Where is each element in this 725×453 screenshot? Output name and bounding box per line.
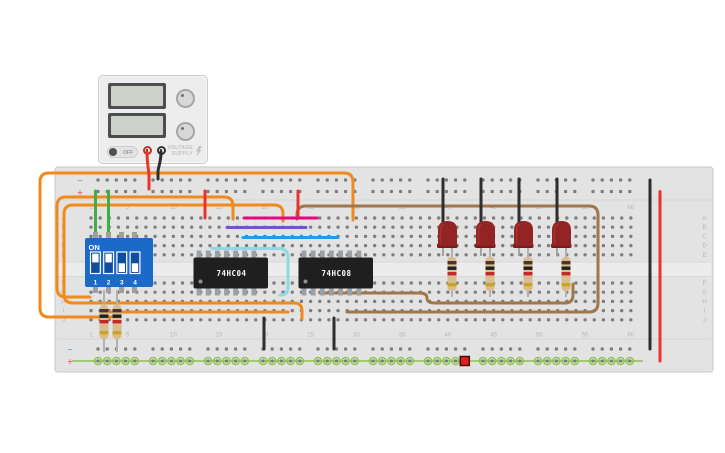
resistor-band xyxy=(524,283,533,286)
resistor-band xyxy=(486,272,495,275)
resistor-band xyxy=(524,272,533,275)
ic-pin xyxy=(233,251,238,259)
dip-on-label: ON xyxy=(89,243,100,252)
ic-pin xyxy=(347,251,352,259)
dip-pin xyxy=(119,232,124,239)
dip-pin xyxy=(93,286,98,293)
resistor-band xyxy=(448,272,457,275)
dip-pin xyxy=(132,232,137,239)
resistor-band xyxy=(486,261,495,264)
dip-switch-number: 2 xyxy=(107,280,111,287)
resistor-band xyxy=(486,267,495,270)
resistor-band xyxy=(448,261,457,264)
dip-switch-number: 1 xyxy=(94,280,98,287)
resistor-band xyxy=(100,309,109,312)
ic-pin xyxy=(242,288,247,296)
ic-pin1-dot-icon xyxy=(199,280,203,284)
ic-pin xyxy=(302,288,307,296)
resistor-band xyxy=(562,267,571,270)
resistor-band xyxy=(562,261,571,264)
resistor-left-1[interactable] xyxy=(100,290,109,352)
resistor-band xyxy=(113,320,122,323)
circuit-canvas: 1155101015152020252530303535404045455050… xyxy=(0,0,725,453)
ic-pin xyxy=(320,288,325,296)
ic-pin xyxy=(338,251,343,259)
resistor-band xyxy=(100,315,109,318)
resistor-led-4[interactable] xyxy=(562,249,571,297)
ic-pin xyxy=(357,288,362,296)
resistor-band xyxy=(100,331,109,334)
led-red-1[interactable] xyxy=(437,221,458,256)
ic-pin xyxy=(215,288,220,296)
dip-switch-slider-2[interactable] xyxy=(105,254,111,263)
dip-switch-slider-4[interactable] xyxy=(132,263,138,272)
ic-pin xyxy=(242,251,247,259)
resistor-band xyxy=(448,283,457,286)
dip-pin xyxy=(119,286,124,293)
ic-pin xyxy=(224,288,229,296)
ic-pin xyxy=(252,251,257,259)
ic-pin xyxy=(357,251,362,259)
components-layer[interactable]: ON123474HC0474HC08 xyxy=(0,0,725,453)
dip-pin xyxy=(132,286,137,293)
dip-switch-slider-3[interactable] xyxy=(119,263,125,272)
ic-pin xyxy=(206,251,211,259)
ic-pin xyxy=(311,251,316,259)
resistor-led-1[interactable] xyxy=(448,249,457,297)
ic-74hc04[interactable]: 74HC04 xyxy=(194,251,269,296)
resistor-band xyxy=(562,272,571,275)
ic-74hc08[interactable]: 74HC08 xyxy=(299,251,374,296)
resistor-band xyxy=(113,315,122,318)
dip-switch-number: 3 xyxy=(120,280,124,287)
dip-pin xyxy=(106,286,111,293)
dip-pin xyxy=(106,232,111,239)
ic-pin xyxy=(252,288,257,296)
ic-pin xyxy=(215,251,220,259)
ic-pin1-dot-icon xyxy=(304,280,308,284)
ic-pin xyxy=(329,251,334,259)
ic-pin xyxy=(302,251,307,259)
led-red-3[interactable] xyxy=(513,221,534,256)
dip-pin xyxy=(93,232,98,239)
led-red-2[interactable] xyxy=(475,221,496,256)
led-red-4[interactable] xyxy=(551,221,572,256)
resistor-band xyxy=(486,283,495,286)
ic-label: 74HC04 xyxy=(216,269,246,278)
resistor-band xyxy=(100,320,109,323)
resistor-led-3[interactable] xyxy=(524,249,533,297)
resistor-band xyxy=(524,267,533,270)
ic-pin xyxy=(197,251,202,259)
ic-pin xyxy=(311,288,316,296)
ic-label: 74HC08 xyxy=(321,269,351,278)
resistor-band xyxy=(524,261,533,264)
resistor-band xyxy=(448,267,457,270)
resistor-band xyxy=(113,309,122,312)
resistor-band xyxy=(113,331,122,334)
resistor-band xyxy=(562,283,571,286)
ic-pin xyxy=(320,251,325,259)
dip-switch-slider-1[interactable] xyxy=(92,254,98,263)
resistor-left-2[interactable] xyxy=(113,290,122,352)
ic-pin xyxy=(233,288,238,296)
ic-pin xyxy=(338,288,343,296)
ic-pin xyxy=(206,288,211,296)
ic-pin xyxy=(329,288,334,296)
resistor-led-2[interactable] xyxy=(486,249,495,297)
dip-switch-number: 4 xyxy=(133,280,137,287)
ic-pin xyxy=(347,288,352,296)
ic-pin xyxy=(224,251,229,259)
dip-switch[interactable]: ON1234 xyxy=(85,232,153,293)
ic-pin xyxy=(197,288,202,296)
